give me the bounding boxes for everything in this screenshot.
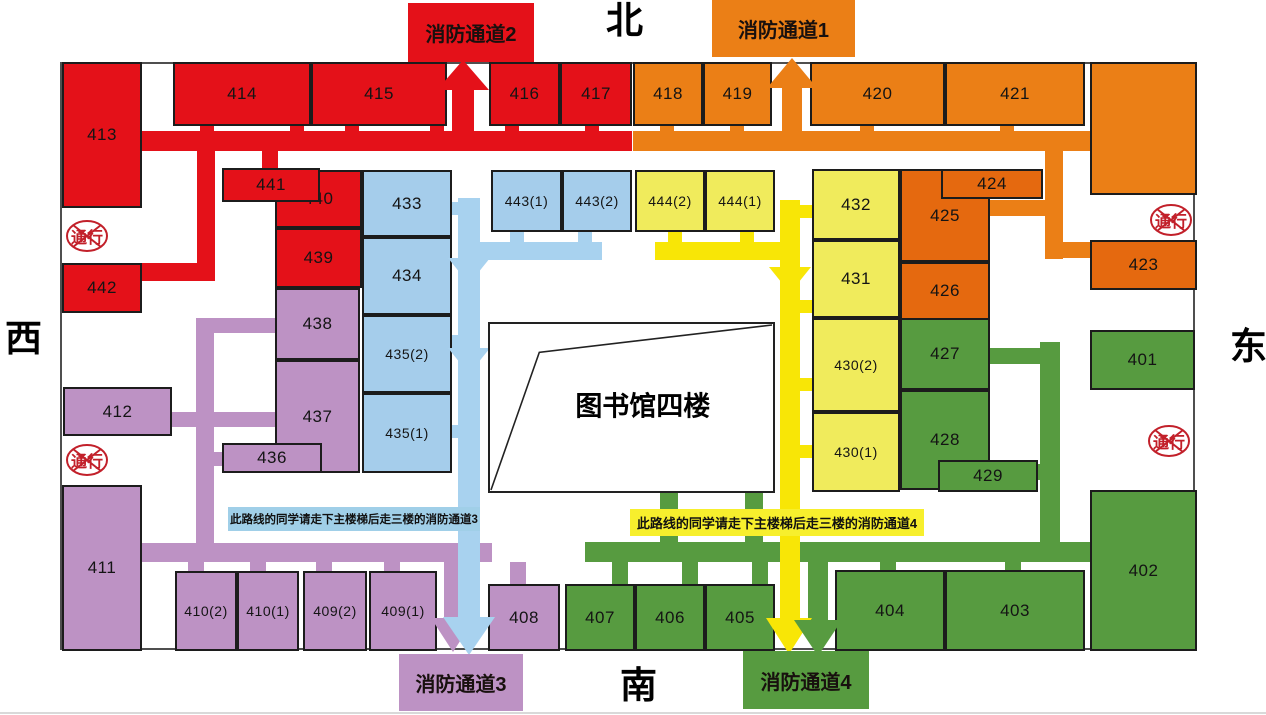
corridor-segment [384, 562, 400, 571]
compass-east: 东 [1230, 328, 1266, 365]
corridor-segment [782, 84, 802, 132]
corridor-segment [197, 151, 215, 281]
no-entry-label: 通行 [1153, 429, 1185, 453]
room-424: 424 [941, 169, 1043, 199]
fire-exit-1-label: 消防通道1 [738, 14, 829, 43]
room-444(1): 444(1) [705, 170, 775, 232]
corridor-segment [612, 562, 628, 584]
library-floor-title-box: 图书馆四楼 [488, 322, 775, 493]
corridor-segment [578, 232, 592, 242]
no-entry-sign: 通行 [1148, 202, 1194, 238]
route3-instruction-text: 此路线的同学请走下主楼梯后走三楼的消防通道3 [230, 511, 478, 527]
room-409(1): 409(1) [369, 571, 437, 651]
corridor-segment [142, 543, 492, 562]
room-421: 421 [945, 62, 1085, 126]
corridor-segment [452, 335, 458, 348]
corridor-segment [800, 300, 812, 313]
corridor-segment [196, 318, 275, 333]
room-434: 434 [362, 237, 452, 315]
fire-exit-3-box: 消防通道3 [399, 654, 523, 711]
room-408: 408 [488, 584, 560, 651]
compass-north: 北 [606, 2, 643, 39]
room-430(2): 430(2) [812, 318, 900, 412]
room-443(2): 443(2) [562, 170, 632, 232]
route-arrowhead-up [767, 58, 817, 88]
corridor-segment [880, 562, 896, 570]
corridor-segment [452, 425, 458, 438]
route-arrowhead-up [437, 60, 489, 90]
fire-exit-2-box: 消防通道2 [408, 3, 534, 62]
room-418: 418 [633, 62, 703, 126]
room-413: 413 [62, 62, 142, 208]
corridor-segment [452, 202, 458, 215]
room-430(1): 430(1) [812, 412, 900, 492]
room-433: 433 [362, 170, 452, 237]
corridor-segment [780, 200, 800, 624]
room-427: 427 [900, 318, 990, 390]
fire-exit-3-label: 消防通道3 [415, 668, 506, 697]
room-407: 407 [565, 584, 635, 651]
corridor-segment [800, 378, 812, 391]
corridor-segment [585, 542, 1092, 562]
corridor-segment [172, 412, 275, 427]
fire-exit-4-box: 消防通道4 [743, 651, 869, 709]
room-unlabeled-block [1090, 62, 1197, 195]
room-405: 405 [705, 584, 775, 651]
corridor-segment [345, 126, 359, 132]
room-412: 412 [63, 387, 172, 436]
corridor-segment [808, 562, 828, 626]
room-441: 441 [222, 168, 320, 202]
room-410(1): 410(1) [237, 571, 299, 651]
floor-title: 图书馆四楼 [575, 385, 710, 424]
no-entry-label: 通行 [71, 448, 103, 472]
corridor-segment [1040, 342, 1060, 544]
corridor-segment [188, 562, 204, 571]
room-417: 417 [560, 62, 632, 126]
route-arrowhead-down [443, 617, 495, 655]
corridor-segment [1005, 562, 1021, 570]
room-420: 420 [810, 62, 945, 126]
corridor-segment [1045, 242, 1092, 258]
image-bottom-edge [0, 712, 1266, 714]
corridor-segment [452, 86, 474, 132]
room-410(2): 410(2) [175, 571, 237, 651]
room-409(2): 409(2) [303, 571, 367, 651]
corridor-segment [196, 318, 214, 543]
corridor-segment [142, 131, 632, 151]
room-431: 431 [812, 240, 900, 318]
corridor-segment [1000, 126, 1014, 132]
corridor-segment [990, 348, 1042, 364]
fire-exit-4-label: 消防通道4 [760, 666, 851, 695]
room-429: 429 [938, 460, 1038, 492]
room-435(2): 435(2) [362, 315, 452, 393]
floor-plan: 4134144154164174404414394424184194204214… [0, 0, 1266, 715]
room-439: 439 [275, 228, 362, 288]
corridor-segment [730, 126, 744, 132]
corridor-segment [480, 242, 602, 260]
corridor-segment [668, 232, 682, 242]
compass-south: 南 [620, 667, 657, 704]
corridor-segment [990, 200, 1045, 216]
room-403: 403 [945, 570, 1085, 651]
corridor-segment [585, 126, 599, 132]
no-entry-label: 通行 [71, 224, 103, 248]
room-443(1): 443(1) [491, 170, 562, 232]
room-423: 423 [1090, 240, 1197, 290]
corridor-segment [682, 562, 698, 584]
corridor-segment [740, 232, 754, 242]
corridor-segment [290, 126, 304, 132]
corridor-segment [505, 126, 519, 132]
no-entry-label: 通行 [1155, 208, 1187, 232]
corridor-segment [510, 562, 526, 584]
room-438: 438 [275, 288, 360, 360]
room-402: 402 [1090, 490, 1197, 651]
room-416: 416 [489, 62, 560, 126]
corridor-segment [510, 232, 524, 242]
room-401: 401 [1090, 330, 1195, 390]
no-entry-sign: 通行 [64, 442, 110, 478]
room-419: 419 [703, 62, 772, 126]
room-406: 406 [635, 584, 705, 651]
route4-instruction-banner: 此路线的同学请走下主楼梯后走三楼的消防通道4 [630, 509, 924, 536]
room-442: 442 [62, 263, 142, 313]
room-435(1): 435(1) [362, 393, 452, 473]
route-arrowhead-down [448, 258, 490, 284]
no-entry-sign: 通行 [64, 218, 110, 254]
compass-west: 西 [5, 320, 42, 357]
corridor-segment [633, 131, 1090, 151]
route4-instruction-text: 此路线的同学请走下主楼梯后走三楼的消防通道4 [637, 513, 917, 532]
corridor-segment [752, 562, 768, 584]
room-436: 436 [222, 443, 322, 473]
room-404: 404 [835, 570, 945, 651]
no-entry-sign: 通行 [1146, 423, 1192, 459]
corridor-segment [655, 242, 780, 260]
room-411: 411 [62, 485, 142, 651]
corridor-segment [660, 126, 674, 132]
route3-instruction-banner: 此路线的同学请走下主楼梯后走三楼的消防通道3 [228, 507, 480, 531]
corridor-segment [800, 205, 812, 218]
room-415: 415 [311, 62, 447, 126]
corridor-segment [200, 126, 214, 132]
corridor-segment [430, 126, 444, 132]
room-444(2): 444(2) [635, 170, 705, 232]
corridor-segment [800, 445, 812, 458]
room-432: 432 [812, 169, 900, 240]
route-arrowhead-down [448, 348, 490, 374]
fire-exit-1-box: 消防通道1 [712, 0, 855, 57]
corridor-segment [142, 263, 199, 281]
room-414: 414 [173, 62, 311, 126]
corridor-segment [250, 562, 266, 571]
corridor-segment [860, 126, 874, 132]
corridor-segment [316, 562, 332, 571]
fire-exit-2-label: 消防通道2 [425, 18, 516, 47]
room-426: 426 [900, 262, 990, 320]
route-arrowhead-down [769, 267, 811, 293]
